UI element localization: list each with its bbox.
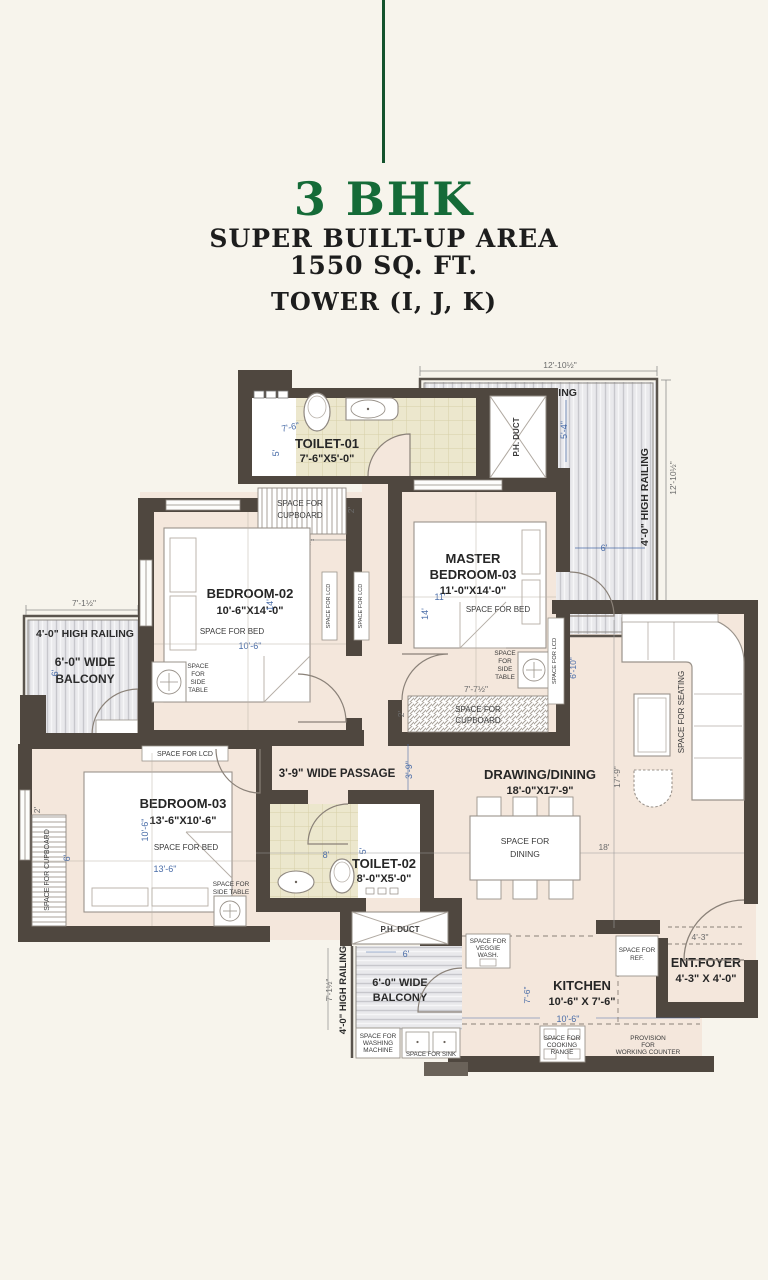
balcony-left-label-1: 6'-0" WIDE [55, 655, 116, 669]
ph-duct1-label: P.H. DUCT [512, 417, 521, 456]
wash-3: MACHINE [363, 1047, 392, 1054]
toilet2-size: 8'-0"X5'-0" [357, 873, 412, 885]
dining-label-1: SPACE FOR [501, 836, 550, 846]
railing-label-top-right: 4'-0" HIGH RAILING [639, 448, 651, 546]
b3-st-2: SIDE TABLE [213, 889, 249, 896]
bed-icon [84, 772, 232, 912]
balcony-left: 4'-0" HIGH RAILING 6'-0" WIDE BALCONY 6'… [20, 598, 140, 742]
bedroom3-name: BEDROOM-03 [140, 796, 227, 811]
cupboard-bedroom3: SPACE FOR CUPBOARD 2' 6' [32, 806, 72, 926]
foyer-dim-4-3: 4'-3" [692, 932, 709, 942]
bedroom3-dim-10-6: 10'-6" [140, 819, 150, 842]
b2-st-3: SIDE [191, 679, 206, 686]
master-dim-14: 14' [420, 608, 430, 620]
kitchen-dim-7-6: 7'-6" [522, 987, 532, 1004]
ref-2: REF. [630, 955, 644, 962]
m-st-2: FOR [498, 658, 512, 665]
m-st-4: TABLE [495, 674, 515, 681]
cupboard-b2-l1: SPACE FOR [277, 499, 323, 508]
dim-12-10-right: 12'-10½" [668, 461, 678, 494]
cupboard-b3-dim2: 2' [32, 806, 42, 813]
subtitle-sqft: 1550 SQ. FT. [290, 251, 478, 280]
b2-st-1: SPACE [187, 663, 208, 670]
ref-1: SPACE FOR [619, 947, 656, 954]
toilet1-dim-5: 5' [271, 449, 281, 456]
drawing-dim-18: 18' [598, 842, 609, 852]
side-table-icon [214, 896, 246, 926]
cupboard-b3-label: SPACE FOR CUPBOARD [44, 829, 51, 911]
master-bed-label: SPACE FOR BED [466, 605, 531, 614]
wc-icon [304, 393, 330, 431]
lcd-b3-label: SPACE FOR LCD [157, 751, 213, 758]
dining-label-2: DINING [510, 849, 540, 859]
toilet2-dim-5: 5' [358, 847, 368, 854]
ph-duct-2: P.H. DUCT [352, 912, 448, 944]
balcony-bottom: 4'-0" HIGH RAILING 7'-1½" 6'-0" WIDE BAL… [325, 946, 462, 1058]
cooking-range-icon: SPACE FOR COOKING RANGE [540, 1026, 585, 1062]
b2-st-4: TABLE [188, 687, 208, 694]
cupboard-b2-dim2: 2' [346, 506, 356, 513]
dim-7-1-bottom: 7'-1½" [325, 979, 334, 1002]
sink-icon: SPACE FOR SINK [402, 1028, 460, 1058]
railing-label-left: 4'-0" HIGH RAILING [36, 628, 134, 640]
dim-6-10: 6'-10" [568, 657, 578, 679]
veg-3: WASH. [478, 952, 499, 959]
dining-table-icon: SPACE FOR DINING [470, 797, 580, 899]
floor-plan-page: 3 BHK SUPER BUILT-UP AREA 1550 SQ. FT. T… [0, 0, 768, 1280]
toilet2-name: TOILET-02 [352, 856, 416, 871]
cupboard-b2-l2: CUPBOARD [277, 511, 323, 520]
cook-1: SPACE FOR [544, 1035, 581, 1042]
bedroom3-dim-13-6: 13'-6" [154, 864, 177, 874]
balcony-bottom-dim-6: 6' [403, 949, 410, 959]
foyer-size: 4'-3" X 4'-0" [676, 973, 737, 985]
coffee-table-icon [634, 694, 670, 756]
railing-label-bottom: 4'-0" HIGH RAILING [338, 946, 349, 1035]
ph-duct2-label: P.H. DUCT [381, 925, 420, 934]
wc-icon [330, 859, 354, 893]
side-table-icon [518, 652, 550, 688]
bedroom2-name: BEDROOM-02 [207, 586, 294, 601]
side-table-icon [152, 662, 186, 702]
kitchen-size: 10'-6" X 7'-6" [548, 996, 615, 1008]
seating-label: SPACE FOR SEATING [677, 671, 686, 753]
cupboard-m-dim2: 2' [396, 710, 406, 717]
ph-duct-1: P.H. DUCT [490, 396, 546, 478]
lcd-corridor-label: SPACE FOR LCD [358, 584, 364, 629]
bedroom3-bed-label: SPACE FOR BED [154, 843, 219, 852]
counter-2: FOR [641, 1042, 655, 1049]
cupboard-m-l1: SPACE FOR [455, 705, 501, 714]
subtitle-area: SUPER BUILT-UP AREA [209, 224, 558, 253]
counter-3: WORKING COUNTER [616, 1049, 681, 1056]
header: 3 BHK SUPER BUILT-UP AREA 1550 SQ. FT. T… [209, 0, 558, 316]
dim-7-1-left: 7'-1½" [72, 598, 96, 608]
lcd-b2-label: SPACE FOR LCD [326, 584, 332, 629]
master-name-2: BEDROOM-03 [430, 567, 517, 582]
page-title: 3 BHK [294, 172, 474, 226]
dim-12-10-top: 12'-10½" [543, 360, 576, 370]
dim-5-4: 5'-4" [559, 421, 569, 439]
veggie-wash: SPACE FOR VEGGIE WASH. [466, 934, 510, 968]
subtitle-tower: TOWER (I, J, K) [271, 287, 497, 316]
washbasin-icon [278, 871, 314, 893]
wash-1: SPACE FOR [360, 1033, 397, 1040]
balcony-bottom-label-1: 6'-0" WIDE [372, 977, 428, 989]
toilet-02: TOILET-02 8'-0"X5'-0" 8' 5' [270, 804, 420, 898]
toilet1-name: TOILET-01 [295, 436, 359, 451]
passage-dim: 3'-9" [404, 761, 414, 779]
master-name-1: MASTER [446, 551, 502, 566]
bedroom3-size: 13'-6"X10'-6" [149, 815, 216, 827]
drawing-size: 18'-0"X17'-9" [506, 785, 573, 797]
cook-3: RANGE [551, 1049, 574, 1056]
b3-st-1: SPACE FOR [213, 881, 250, 888]
m-st-3: SIDE [498, 666, 513, 673]
cupboard-m-l2: CUPBOARD [455, 716, 501, 725]
balcony-left-label-2: BALCONY [55, 672, 114, 686]
kitchen-name: KITCHEN [553, 978, 611, 993]
fridge: SPACE FOR REF. [616, 936, 658, 976]
toilet2-dim-8: 8' [323, 850, 330, 860]
kitchen-dim-10-6: 10'-6" [557, 1014, 580, 1024]
b2-st-2: FOR [191, 671, 205, 678]
m-st-1: SPACE [494, 650, 515, 657]
washing-machine: SPACE FOR WASHING MACHINE [356, 1028, 400, 1058]
bedroom2-dim-10-6: 10'-6" [239, 641, 262, 651]
sink-label: SPACE FOR SINK [406, 1052, 456, 1058]
passage-label: 3'-9" WIDE PASSAGE [279, 768, 396, 780]
master-size: 11'-0"X14'-0" [440, 585, 506, 597]
lcd-hall-label: SPACE FOR LCD [552, 638, 558, 684]
foyer-name: ENT.FOYER [671, 956, 741, 970]
cupboard-b3-dim6: 6' [62, 854, 72, 861]
cook-2: COOKING [547, 1042, 577, 1049]
counter-1: PROVISION [630, 1035, 666, 1042]
toilet1-size: 7'-6"X5'-0" [300, 453, 355, 465]
drawing-name: DRAWING/DINING [484, 767, 596, 782]
bedroom2-dim-14: 14' [265, 599, 275, 611]
washbasin-icon [346, 398, 398, 420]
balcony-left-dim-6: 6' [50, 669, 60, 676]
veg-1: SPACE FOR [470, 938, 507, 945]
pouf-icon [634, 770, 672, 807]
drawing-dim-17-9: 17'-9" [612, 766, 622, 788]
bedroom2-bed-label: SPACE FOR BED [200, 627, 265, 636]
veg-2: VEGGIE [476, 945, 501, 952]
wash-2: WASHING [363, 1040, 393, 1047]
